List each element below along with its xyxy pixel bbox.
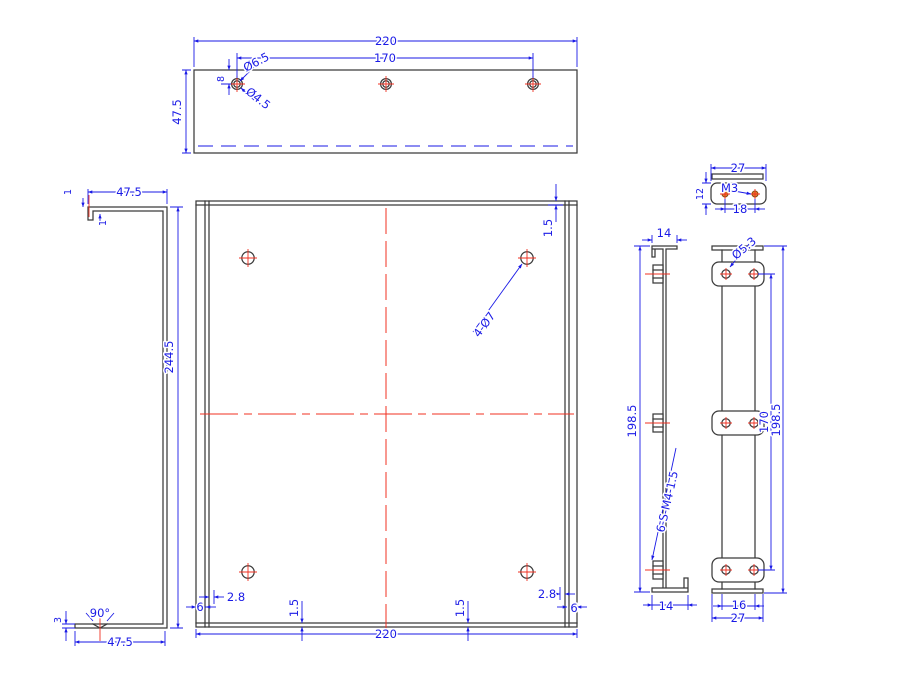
dim-thread-callout: M3 (721, 181, 738, 195)
dim-bracket-height: 12 (695, 188, 706, 200)
dim-bend-right: 1.5 (453, 599, 467, 617)
top-flange-view: 220 170 47.5 8 Ø6.5 Ø4.5 (170, 34, 577, 153)
dim-bend-top: 1.5 (541, 219, 555, 237)
dim-hem-b: 1 (98, 220, 109, 226)
dim-height: 244.5 (162, 341, 176, 374)
dim-hole-span: 170 (374, 51, 396, 65)
bracket-top-view: 27 12 M3 18 (695, 161, 766, 216)
dim-depth: 47.5 (170, 99, 184, 125)
dim-hole-offset: 8 (216, 76, 227, 82)
dim-bend-left: 1.5 (287, 599, 301, 617)
dim-edge-right: 6 (570, 601, 577, 615)
side-profile-view: 47.5 1 1 244.5 90° 3 47.5 (53, 185, 183, 649)
dim-flange-bottom: 47.5 (107, 635, 133, 649)
dim-offset-right: 2.8 (538, 587, 556, 601)
dim-rail-width-inner: 16 (732, 598, 747, 612)
dim-offset-left: 2.8 (227, 590, 245, 604)
cad-drawing-sheet: 220 170 47.5 8 Ø6.5 Ø4.5 47.5 1 1 244.5 … (0, 0, 900, 696)
channel-outline (75, 207, 167, 628)
dim-width: 220 (375, 627, 397, 641)
dim-csk-angle: 90° (90, 606, 110, 620)
drawing-canvas: 220 170 47.5 8 Ø6.5 Ø4.5 47.5 1 1 244.5 … (0, 0, 900, 696)
dim-edge-left: 6 (196, 600, 203, 614)
dim-flange-top: 47.5 (116, 185, 142, 199)
rail-face-view: Ø5.3 170 198.5 16 27 (712, 234, 787, 625)
rail-side-view: 14 198.5 6-S-M4-1.5 14 (625, 226, 697, 613)
dim-overall-width: 220 (375, 34, 397, 48)
flange-outline (194, 70, 577, 153)
dim-hem-a: 1 (63, 189, 74, 195)
dim-tip-height: 3 (53, 617, 64, 623)
dim-bracket-width: 27 (731, 161, 746, 175)
dim-rail-flange-bottom: 14 (659, 599, 674, 613)
dim-rail-flange-top: 14 (657, 226, 672, 240)
dim-rail-length: 198.5 (625, 405, 639, 438)
dim-standoff-callout: 6-S-M4-1.5 (653, 470, 681, 534)
dim-rail-face-length: 198.5 (769, 404, 783, 437)
dim-rail-width-outer: 27 (731, 611, 746, 625)
dim-bracket-hole-span: 18 (733, 202, 748, 216)
